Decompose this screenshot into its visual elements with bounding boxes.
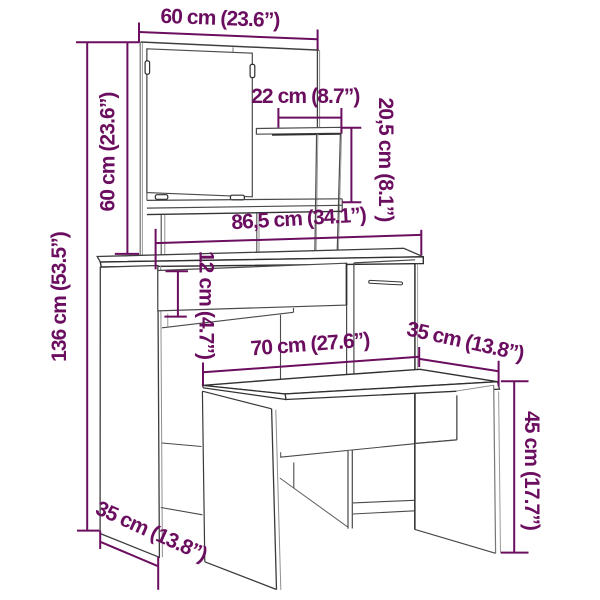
svg-text:60 cm (23.6”): 60 cm (23.6”) — [160, 5, 280, 32]
svg-text:12 cm (4.7”): 12 cm (4.7”) — [195, 251, 218, 359]
svg-text:22 cm (8.7”): 22 cm (8.7”) — [251, 85, 359, 108]
svg-text:136 cm (53.5”): 136 cm (53.5”) — [48, 232, 71, 362]
svg-text:45 cm (17.7”): 45 cm (17.7”) — [520, 411, 543, 530]
svg-text:20,5 cm (8.1”): 20,5 cm (8.1”) — [374, 98, 397, 222]
svg-text:60 cm (23.6”): 60 cm (23.6”) — [97, 92, 120, 211]
svg-text:70 cm (27.6”): 70 cm (27.6”) — [250, 329, 370, 361]
svg-text:86,5 cm (34.1”): 86,5 cm (34.1”) — [231, 204, 367, 235]
